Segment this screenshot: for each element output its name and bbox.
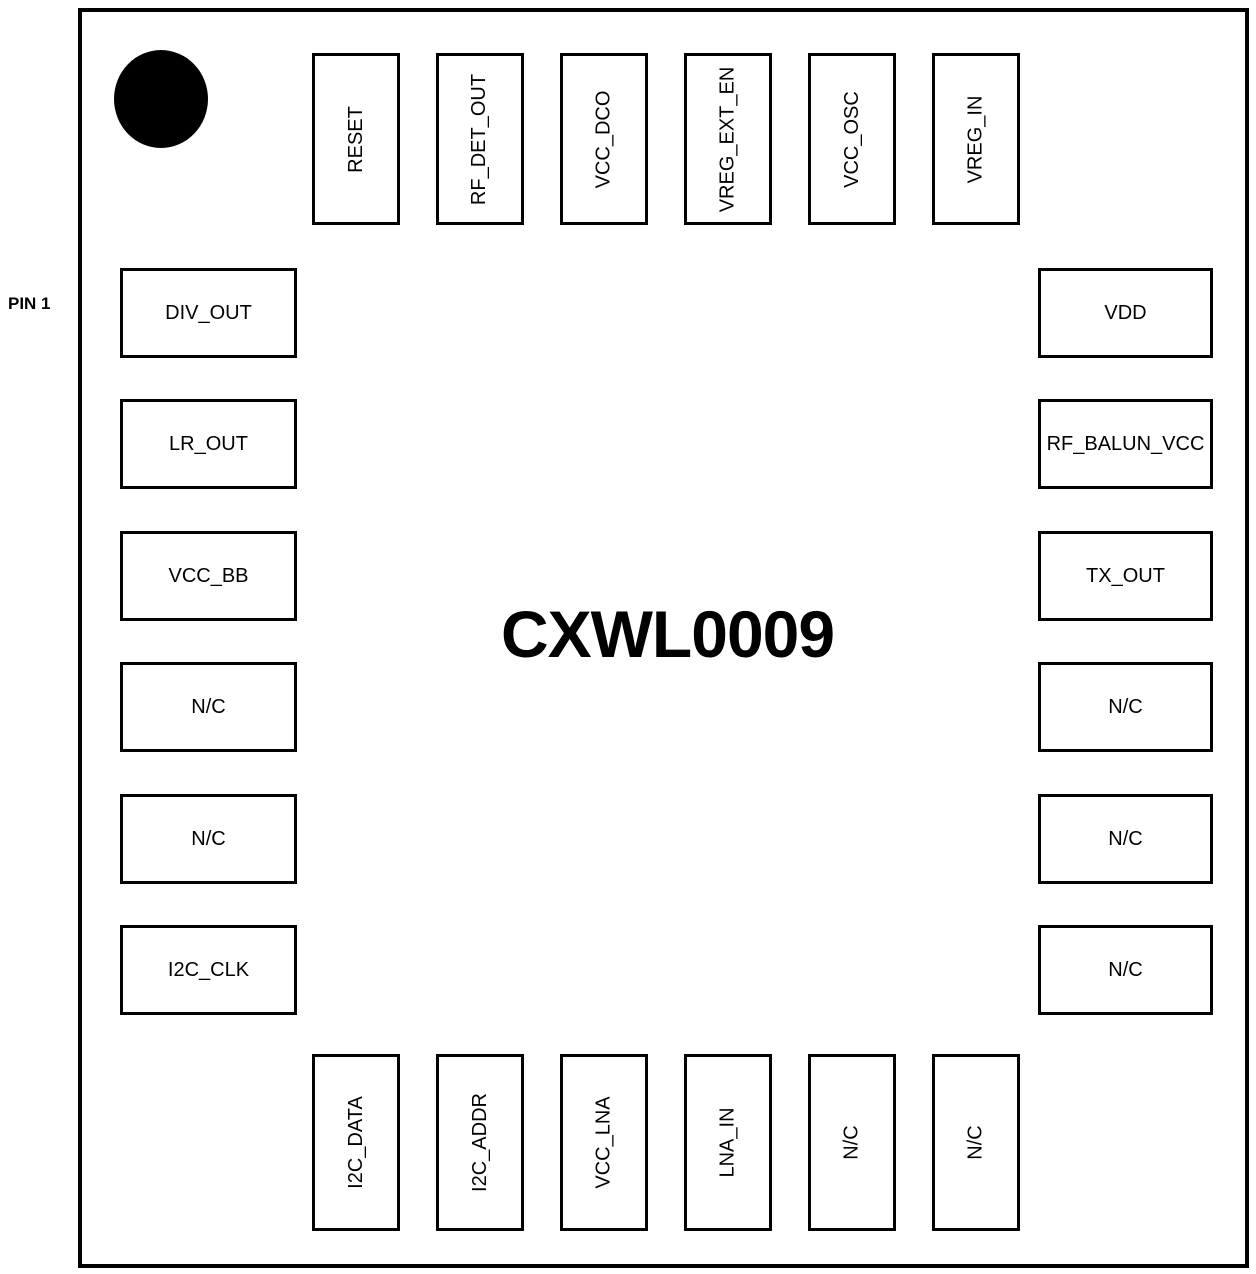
pin-label: N/C [191,828,225,851]
pin-label: VCC_LNA [593,1096,616,1188]
pin-nc-right-1: N/C [1038,662,1213,752]
pin-rf-balun-vcc: RF_BALUN_VCC [1038,399,1213,489]
pin-lr-out: LR_OUT [120,399,297,489]
pin-label: N/C [840,1125,863,1159]
pin-nc-bottom-1: N/C [808,1054,896,1231]
pin-label: VCC_BB [168,565,248,588]
pin-label: VCC_DCO [593,90,616,188]
pin-i2c-clk: I2C_CLK [120,925,297,1015]
pin-label: VREG_EXT_EN [717,66,740,212]
pin-rf-det-out: RF_DET_OUT [436,53,524,225]
pin-label: I2C_DATA [345,1096,368,1189]
pin-vcc-lna: VCC_LNA [560,1054,648,1231]
pin-label: N/C [1108,696,1142,719]
pin-vreg-in: VREG_IN [932,53,1020,225]
pin-label: N/C [191,696,225,719]
pin-label: VDD [1104,302,1146,325]
pin-vdd: VDD [1038,268,1213,358]
pin-label: TX_OUT [1086,565,1165,588]
pin-i2c-addr: I2C_ADDR [436,1054,524,1231]
pin-vcc-dco: VCC_DCO [560,53,648,225]
pin-label: I2C_CLK [168,959,249,982]
pin-div-out: DIV_OUT [120,268,297,358]
chip-title: CXWL0009 [297,596,1038,672]
pin-nc-right-3: N/C [1038,925,1213,1015]
pin-label: LR_OUT [169,433,248,456]
pin-label: DIV_OUT [165,302,252,325]
pin-lna-in: LNA_IN [684,1054,772,1231]
pin-vcc-bb: VCC_BB [120,531,297,621]
pin1-label: PIN 1 [8,294,51,314]
pin-label: RESET [345,106,368,173]
pin-label: VCC_OSC [841,91,864,188]
pin-vreg-ext-en: VREG_EXT_EN [684,53,772,225]
pinout-diagram: PIN 1 CXWL0009 RESET RF_DET_OUT VCC_DCO … [0,0,1256,1274]
pin-label: LNA_IN [717,1107,740,1177]
pin-nc-bottom-2: N/C [932,1054,1020,1231]
pin-label: RF_DET_OUT [469,73,492,204]
pin-nc-left-1: N/C [120,662,297,752]
pin-vcc-osc: VCC_OSC [808,53,896,225]
pin-reset: RESET [312,53,400,225]
pin-nc-right-2: N/C [1038,794,1213,884]
pin-label: N/C [1108,959,1142,982]
pin-tx-out: TX_OUT [1038,531,1213,621]
pin-label: I2C_ADDR [469,1093,492,1192]
pin-label: N/C [1108,828,1142,851]
pin-nc-left-2: N/C [120,794,297,884]
pin-label: N/C [964,1125,987,1159]
pin-label: RF_BALUN_VCC [1047,433,1205,456]
pin1-indicator-dot [114,50,208,148]
pin-i2c-data: I2C_DATA [312,1054,400,1231]
pin-label: VREG_IN [965,95,988,183]
